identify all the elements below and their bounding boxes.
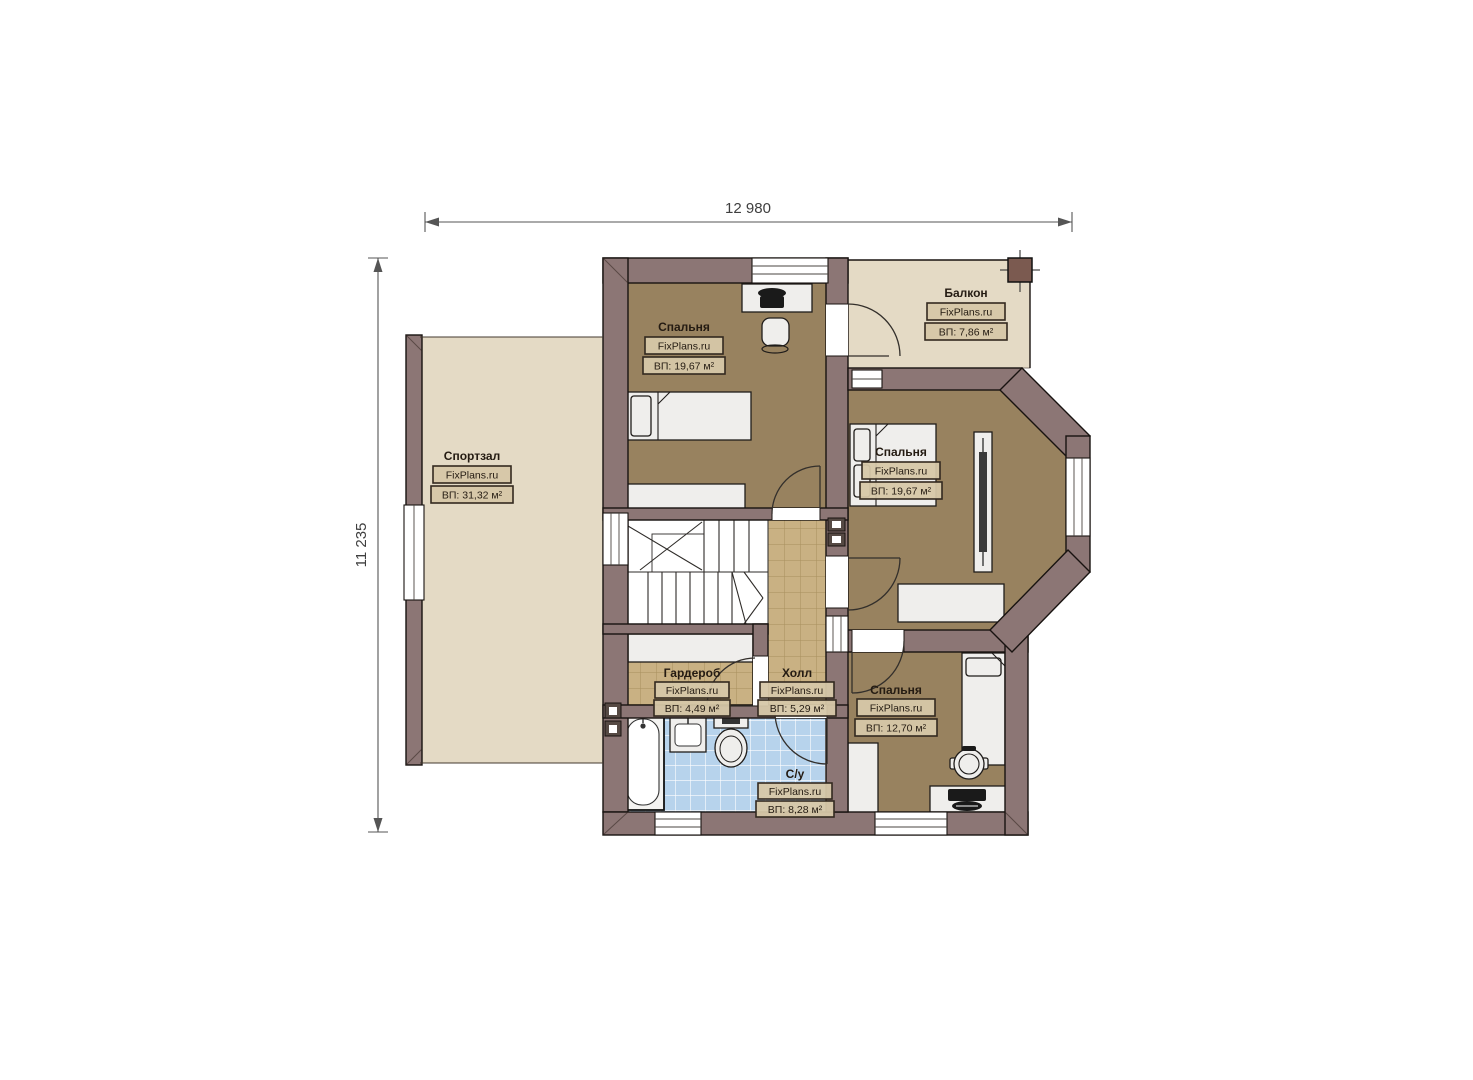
area-text: ВП: 5,29 м² (770, 703, 825, 715)
radiator (974, 432, 992, 572)
area-text: ВП: 8,28 м² (768, 804, 823, 816)
desk-bottom-bedroom (930, 786, 1006, 812)
room-name: Спальня (658, 320, 710, 334)
brand-text: FixPlans.ru (870, 703, 923, 715)
area-text: ВП: 19,67 м² (871, 486, 932, 498)
window-left-stairs (603, 513, 628, 565)
area-text: ВП: 4,49 м² (665, 703, 720, 715)
toilet (714, 714, 748, 767)
wall-stairs-south (603, 624, 768, 634)
staircase (628, 520, 768, 624)
area-text: ВП: 7,86 м² (939, 327, 994, 339)
window-bottom-bathroom (655, 812, 701, 835)
area-text: ВП: 19,67 м² (654, 361, 715, 373)
bed-top-bedroom (627, 392, 751, 440)
brand-text: FixPlans.ru (446, 470, 499, 482)
dimension-left: 11 235 (353, 258, 388, 832)
wardrobe-unit-top-bedroom (625, 484, 745, 510)
window-bottom-bedroom (875, 812, 947, 835)
room-name: С/у (786, 767, 805, 781)
wardrobe-unit-bottom-bedroom (848, 743, 878, 813)
brand-text: FixPlans.ru (875, 466, 928, 478)
area-text: ВП: 12,70 м² (866, 723, 927, 735)
brand-text: FixPlans.ru (769, 786, 822, 798)
room-label-wardrobe: Гардероб FixPlans.ru ВП: 4,49 м² (654, 666, 730, 716)
window-bay (1066, 458, 1090, 536)
window-balcony-wall (852, 370, 882, 388)
wardrobe-unit-right-bedroom (898, 584, 1004, 622)
brand-text: FixPlans.ru (666, 685, 719, 697)
floor-plan-canvas: Спортзал FixPlans.ru ВП: 31,32 м² Спальн… (0, 0, 1473, 1080)
room-name: Спальня (870, 683, 922, 697)
room-name: Холл (782, 666, 812, 680)
window-gym (404, 505, 424, 600)
desk-top-bedroom (742, 284, 812, 312)
room-name: Балкон (944, 286, 987, 300)
opening-hall-bedroom (826, 616, 848, 652)
brand-text: FixPlans.ru (658, 341, 711, 353)
area-text: ВП: 31,32 м² (442, 490, 503, 502)
dimension-height-value: 11 235 (353, 523, 370, 568)
brand-text: FixPlans.ru (771, 685, 824, 697)
wall-bedroom-bottom-east (1005, 630, 1028, 835)
dimension-width-value: 12 980 (725, 200, 771, 217)
room-name: Гардероб (664, 666, 721, 680)
floor-plan-drawing: Спортзал FixPlans.ru ВП: 31,32 м² Спальн… (0, 0, 1473, 1080)
dimension-top: 12 980 (425, 200, 1072, 232)
gym-floor (420, 337, 603, 763)
closet-shelf (628, 634, 753, 662)
window-top-bedroom (752, 258, 828, 283)
sink (670, 716, 706, 752)
room-name: Спальня (875, 445, 927, 459)
brand-text: FixPlans.ru (940, 307, 993, 319)
room-name: Спортзал (444, 449, 500, 463)
